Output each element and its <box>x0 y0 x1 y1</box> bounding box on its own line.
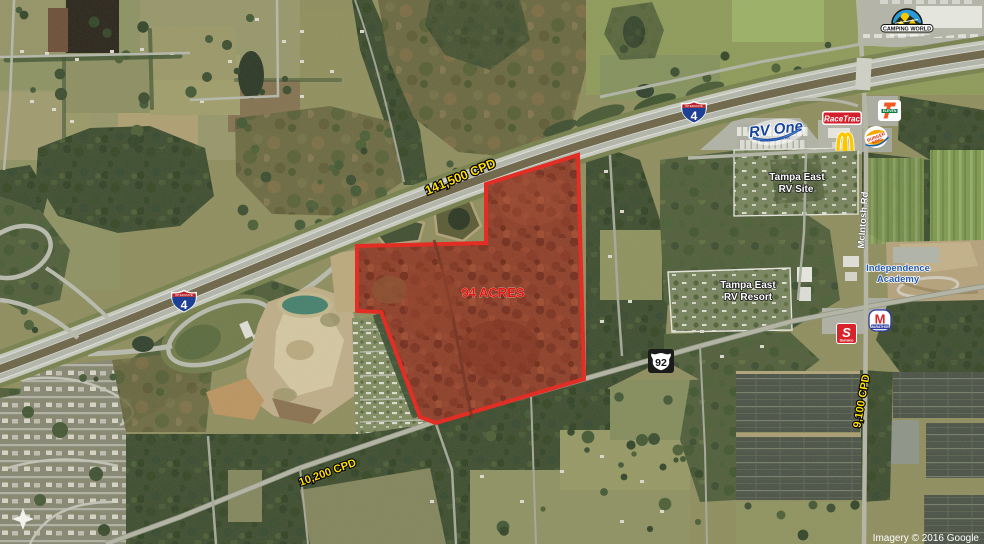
svg-text:4: 4 <box>691 109 698 123</box>
svg-text:4: 4 <box>181 298 188 312</box>
svg-text:RaceTrac: RaceTrac <box>824 115 860 124</box>
svg-text:Academy: Academy <box>877 274 920 285</box>
svg-text:Sunoco: Sunoco <box>840 339 855 343</box>
svg-text:92: 92 <box>655 357 667 369</box>
svg-text:CAMPING WORLD: CAMPING WORLD <box>883 26 931 32</box>
svg-text:RV Site: RV Site <box>779 184 814 195</box>
svg-text:ELEVEN: ELEVEN <box>883 109 897 113</box>
svg-text:INTERSTATE: INTERSTATE <box>175 293 193 297</box>
svg-text:Independence: Independence <box>866 263 930 274</box>
svg-text:Tampa East: Tampa East <box>769 172 825 183</box>
svg-text:INTERSTATE: INTERSTATE <box>685 104 703 108</box>
svg-text:MARATHON: MARATHON <box>870 325 890 329</box>
svg-text:Tampa East: Tampa East <box>720 280 776 291</box>
svg-text:94 ACRES: 94 ACRES <box>461 285 524 300</box>
svg-text:Imagery © 2016 Google: Imagery © 2016 Google <box>873 533 980 544</box>
svg-text:RV Resort: RV Resort <box>724 292 773 303</box>
